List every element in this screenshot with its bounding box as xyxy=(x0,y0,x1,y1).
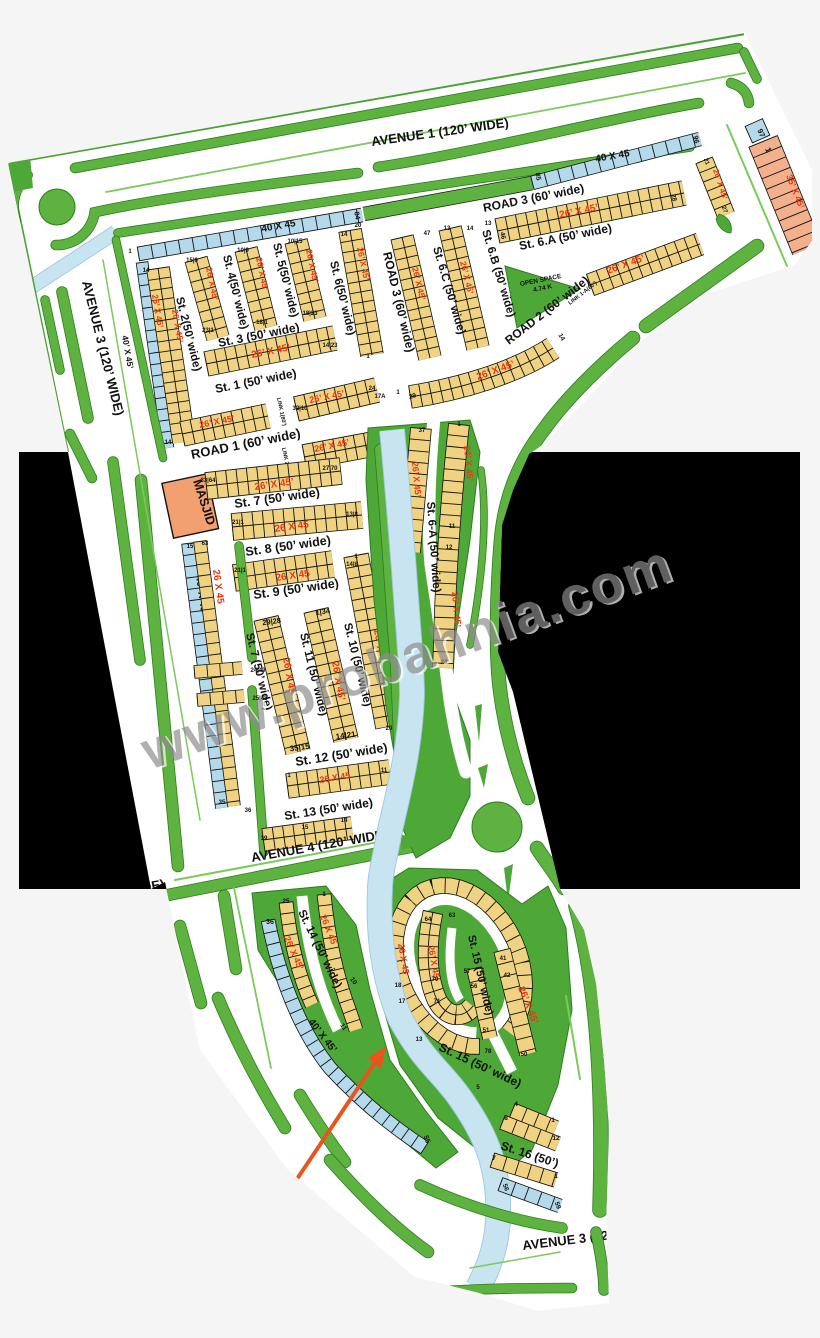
svg-text:41: 41 xyxy=(500,956,507,962)
svg-text:15: 15 xyxy=(302,825,309,831)
svg-text:63: 63 xyxy=(202,541,209,547)
svg-text:14: 14 xyxy=(467,226,474,232)
svg-text:19: 19 xyxy=(261,836,268,842)
svg-text:37: 37 xyxy=(419,428,426,434)
svg-text:20: 20 xyxy=(355,223,362,229)
svg-text:50: 50 xyxy=(521,1052,528,1058)
svg-text:78: 78 xyxy=(485,1049,492,1055)
svg-text:13: 13 xyxy=(416,1037,423,1043)
svg-text:7: 7 xyxy=(492,1155,496,1162)
svg-text:10|15: 10|15 xyxy=(287,239,303,245)
svg-text:21|1: 21|1 xyxy=(234,568,246,574)
svg-text:71: 71 xyxy=(434,999,441,1005)
svg-text:14: 14 xyxy=(341,818,348,824)
svg-text:11: 11 xyxy=(381,768,388,774)
svg-text:63: 63 xyxy=(449,913,456,919)
svg-text:12: 12 xyxy=(446,545,453,551)
svg-text:1: 1 xyxy=(554,1173,558,1180)
svg-text:18|1: 18|1 xyxy=(256,320,268,326)
svg-text:70: 70 xyxy=(432,977,439,983)
svg-text:33|64: 33|64 xyxy=(200,478,216,484)
svg-text:13: 13 xyxy=(444,226,451,232)
svg-text:32|10: 32|10 xyxy=(292,406,308,412)
svg-text:35: 35 xyxy=(219,800,226,806)
svg-text:15|9: 15|9 xyxy=(186,258,198,264)
svg-text:8: 8 xyxy=(504,1115,508,1122)
svg-text:14: 14 xyxy=(165,440,172,446)
svg-text:12: 12 xyxy=(552,1135,560,1142)
svg-text:23|1: 23|1 xyxy=(202,328,214,334)
svg-text:27|70: 27|70 xyxy=(322,466,338,472)
svg-text:14|23: 14|23 xyxy=(322,343,338,349)
svg-text:4: 4 xyxy=(514,1101,518,1108)
svg-text:57: 57 xyxy=(464,969,471,975)
svg-text:47: 47 xyxy=(424,231,431,237)
svg-text:13: 13 xyxy=(485,221,492,227)
svg-text:42: 42 xyxy=(504,973,511,979)
svg-text:1: 1 xyxy=(551,1117,555,1124)
svg-text:18|23: 18|23 xyxy=(302,311,318,317)
svg-text:20: 20 xyxy=(386,726,393,732)
svg-text:13|8: 13|8 xyxy=(346,512,358,518)
svg-text:25: 25 xyxy=(282,898,290,905)
svg-text:14: 14 xyxy=(143,268,150,274)
svg-text:11: 11 xyxy=(449,524,456,530)
svg-text:15: 15 xyxy=(187,544,194,550)
svg-text:18: 18 xyxy=(395,983,402,989)
svg-text:17A: 17A xyxy=(374,394,386,400)
svg-text:56: 56 xyxy=(471,984,478,990)
svg-text:1: 1 xyxy=(322,891,326,898)
svg-text:64: 64 xyxy=(425,917,432,923)
svg-text:14|8: 14|8 xyxy=(346,562,358,568)
svg-text:36: 36 xyxy=(245,808,252,814)
svg-text:36: 36 xyxy=(266,919,274,926)
svg-text:14: 14 xyxy=(341,232,348,238)
svg-text:51: 51 xyxy=(483,1028,490,1034)
svg-text:24|49: 24|49 xyxy=(250,668,266,674)
svg-text:10|9: 10|9 xyxy=(237,248,249,254)
svg-text:24: 24 xyxy=(369,386,376,392)
svg-text:21|1: 21|1 xyxy=(232,520,244,526)
svg-text:17: 17 xyxy=(399,999,406,1005)
